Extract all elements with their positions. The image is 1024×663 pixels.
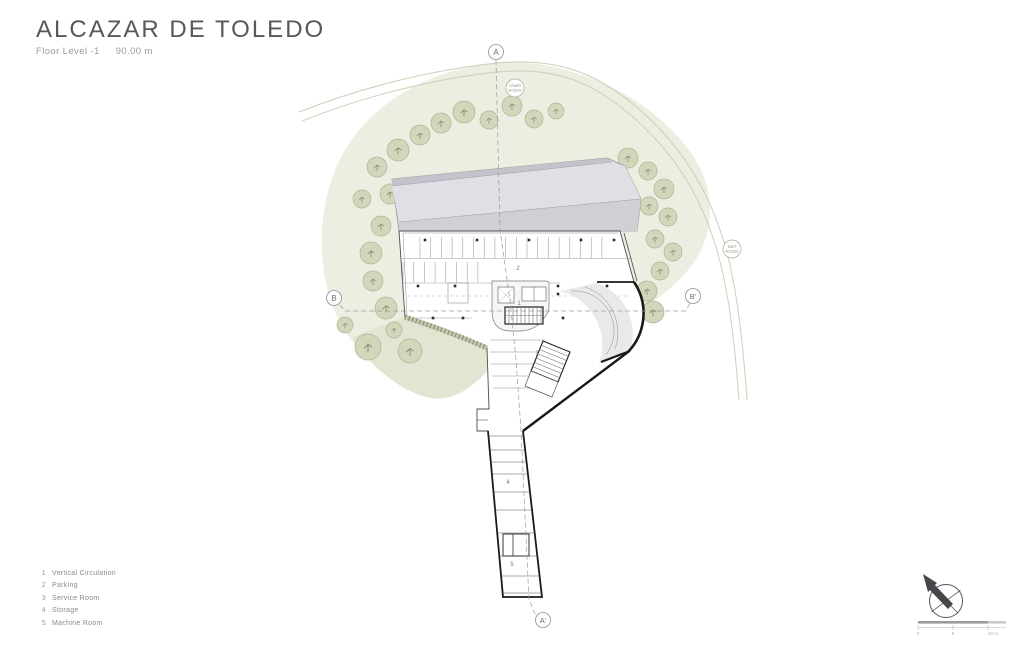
svg-text:A: A	[493, 48, 499, 57]
legend-item-label: Machine Room	[52, 620, 103, 627]
section-marker-b: B	[327, 291, 342, 306]
north-arrow	[923, 574, 963, 618]
road-badge-east: EAST ACCESS	[723, 240, 741, 258]
legend-item-label: Parking	[52, 582, 78, 589]
svg-text:B: B	[331, 294, 336, 303]
road-badge-lower: LOWER ACCESS	[506, 79, 524, 97]
legend: 1Vertical Circulation 2Parking 3Service …	[38, 568, 116, 630]
svg-text:EAST: EAST	[728, 245, 736, 249]
legend-item-label: Vertical Circulation	[52, 570, 116, 577]
svg-text:LOWER: LOWER	[509, 84, 521, 88]
legend-item: 2Parking	[38, 580, 116, 592]
scale-bar: 0 5 10 m	[917, 621, 1006, 636]
svg-text:0: 0	[917, 631, 920, 636]
legend-item: 5Machine Room	[38, 618, 116, 630]
svg-text:B': B'	[690, 292, 697, 301]
svg-text:A': A'	[540, 616, 547, 625]
section-marker-a-prime: A'	[536, 613, 551, 628]
svg-text:10 m: 10 m	[988, 631, 998, 636]
legend-item-label: Service Room	[52, 595, 100, 602]
site-plan-canvas: A A' B B' LOWER ACCESS EAS	[0, 0, 1024, 663]
section-marker-b-prime: B'	[686, 289, 701, 304]
svg-text:ACCESS: ACCESS	[725, 250, 738, 254]
legend-item-label: Storage	[52, 607, 79, 614]
legend-item: 3Service Room	[38, 593, 116, 605]
building	[399, 231, 644, 597]
drawing-sheet: ALCAZAR DE TOLEDO Floor Level -190.00 m	[0, 0, 1024, 663]
legend-item: 1Vertical Circulation	[38, 568, 116, 580]
svg-text:5: 5	[952, 631, 955, 636]
section-marker-a: A	[489, 45, 504, 60]
svg-text:ACCESS: ACCESS	[508, 89, 521, 93]
legend-item: 4Storage	[38, 605, 116, 617]
